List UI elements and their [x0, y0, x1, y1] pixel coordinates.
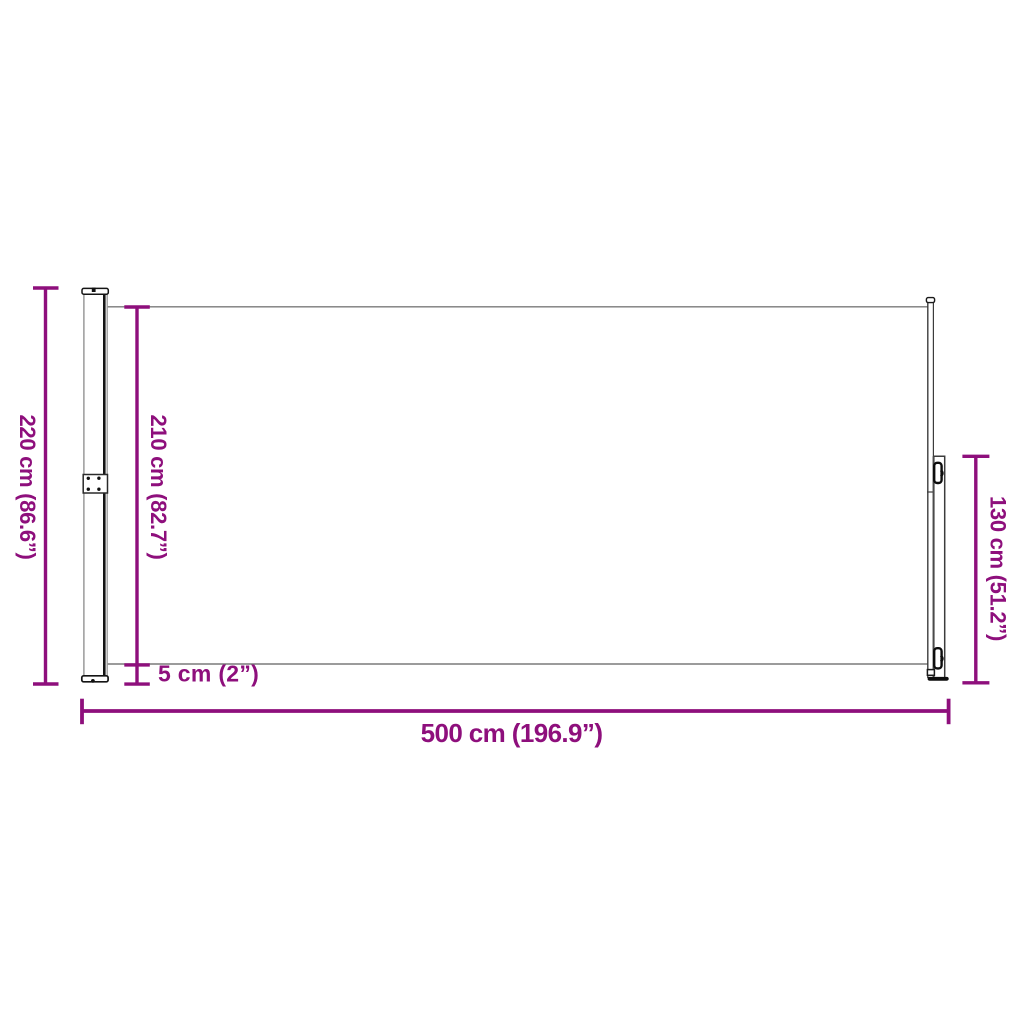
svg-text:500 cm (196.9”): 500 cm (196.9”) — [421, 718, 603, 748]
svg-text:5 cm (2”): 5 cm (2”) — [158, 661, 259, 687]
svg-text:210 cm (82.7”): 210 cm (82.7”) — [146, 415, 171, 560]
svg-text:220 cm (86.6”): 220 cm (86.6”) — [15, 415, 40, 560]
svg-text:130 cm (51.2”): 130 cm (51.2”) — [986, 496, 1011, 641]
